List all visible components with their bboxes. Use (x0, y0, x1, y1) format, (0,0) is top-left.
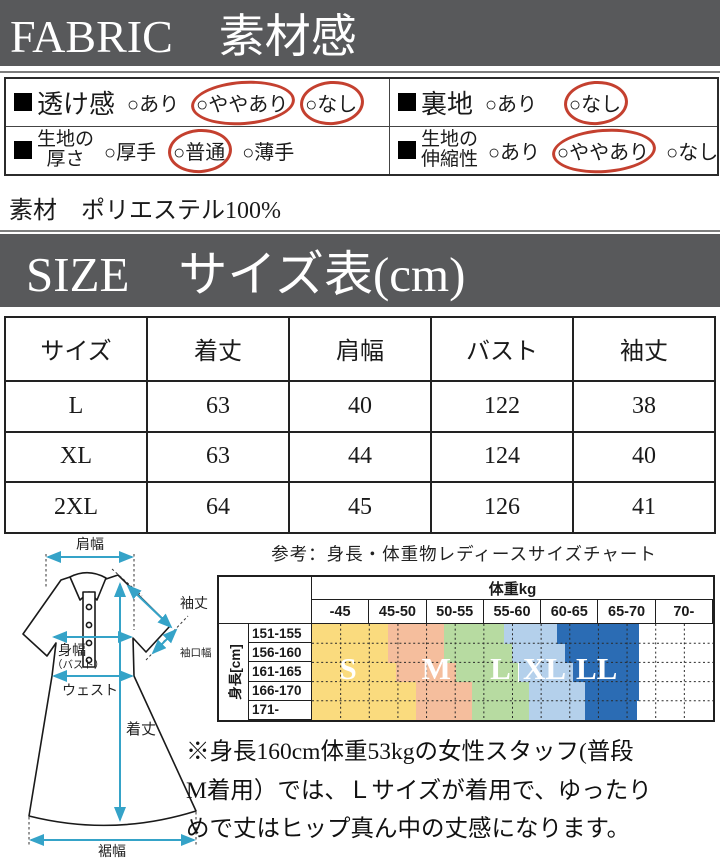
col-header: バスト (431, 317, 573, 381)
bottom-section: 肩幅 袖丈 袖口幅 身幅 （バスト） ウェスト 着丈 裾幅 参考：身長・体重物レ… (0, 534, 720, 859)
size-table: サイズ 着丈 肩幅 バスト 袖丈 L 63 40 122 38 XL 63 44… (4, 316, 716, 534)
weight-col-label: 50-55 (427, 600, 484, 624)
weight-axis-header: 体重kg (312, 577, 713, 600)
fabric-banner-title: FABRIC 素材感 (10, 0, 357, 66)
black-square-bullet-icon (14, 141, 32, 159)
bust-width-sublabel: （バスト） (52, 659, 105, 671)
cell-value: 41 (573, 482, 715, 533)
shoulder-width-label: 肩幅 (76, 536, 104, 552)
fabric-option-circled: ○ややあり (557, 136, 649, 165)
weight-col-label: 60-65 (541, 600, 598, 624)
size-name: L (5, 381, 147, 432)
size-letter: L (490, 651, 511, 687)
fabric-option-circled: ○普通 (173, 136, 225, 165)
height-row-label: 171- (249, 701, 312, 720)
fabric-option: ○薄手 (242, 136, 294, 165)
cell-value: 40 (289, 381, 431, 432)
fabric-option: ○あり (127, 88, 179, 117)
table-row: XL 63 44 124 40 (5, 432, 715, 483)
col-header: 袖丈 (573, 317, 715, 381)
height-row-label: 156-160 (249, 643, 312, 662)
size-banner-title: SIZE サイズ表(cm) (26, 235, 465, 306)
sleeve-length-label: 袖丈 (180, 595, 208, 611)
fabric-option-circled: ○なし (569, 88, 621, 117)
size-letter: S (339, 651, 356, 687)
cell-value: 38 (573, 381, 715, 432)
height-row-label: 166-170 (249, 682, 312, 701)
fabric-row-stretch: 生地の 伸縮性 ○あり ○ややあり ○なし (390, 127, 717, 175)
waist-label: ウェスト (62, 682, 118, 698)
fabric-row-thickness: 生地の 厚さ ○厚手 ○普通 ○薄手 (6, 127, 390, 175)
fabric-banner: FABRIC 素材感 (0, 0, 720, 66)
cell-value: 122 (431, 381, 573, 432)
size-letter: XL (523, 651, 566, 687)
dress-outline (23, 573, 196, 826)
cell-value: 64 (147, 482, 289, 533)
fabric-label: 透け感 (37, 84, 115, 121)
fabric-option-circled: ○ややあり (196, 88, 288, 117)
weight-col-label: 70- (656, 600, 713, 624)
weight-col-label: 55-60 (484, 600, 541, 624)
size-name: XL (5, 432, 147, 483)
fabric-option: ○あり (485, 88, 537, 117)
divider-line (0, 71, 720, 73)
height-row-label: 161-165 (249, 662, 312, 681)
col-header: サイズ (5, 317, 147, 381)
bust-width-label: 身幅 (58, 642, 86, 658)
size-table-header-row: サイズ 着丈 肩幅 バスト 袖丈 (5, 317, 715, 381)
weight-col-label: 45-50 (369, 600, 426, 624)
weight-col-label: -45 (312, 600, 369, 624)
material-text: 素材 ポリエステル100% (9, 190, 281, 225)
col-header: 着丈 (147, 317, 289, 381)
note-line: めで丈はヒップ真ん中の丈感になります。 (186, 810, 720, 849)
table-row: L 63 40 122 38 (5, 381, 715, 432)
black-square-bullet-icon (398, 141, 416, 159)
fabric-row-sheerness: 透け感 ○あり ○ややあり ○なし (6, 79, 390, 127)
fabric-label-twoline: 生地の 伸縮性 (421, 130, 478, 171)
size-letter: M (422, 651, 451, 687)
fabric-option: ○なし (666, 136, 717, 165)
size-letter: LL (576, 651, 617, 687)
size-banner: SIZE サイズ表(cm) (0, 234, 720, 307)
black-square-bullet-icon (14, 93, 32, 111)
black-square-bullet-icon (398, 93, 416, 111)
fabric-row-lining: 裏地 ○あり ○なし (390, 79, 717, 127)
fabric-label-twoline: 生地の 厚さ (37, 130, 94, 171)
note-line: M着用）では、Ｌサイズが着用で、ゆったり (186, 772, 720, 811)
fabric-label: 裏地 (421, 84, 473, 121)
divider-line (0, 230, 720, 232)
fabric-option: ○あり (488, 136, 540, 165)
cuff-width-label: 袖口幅 (180, 646, 212, 659)
reference-chart-caption: 参考：身長・体重物レディースサイズチャート (217, 541, 711, 566)
cell-value: 63 (147, 381, 289, 432)
height-axis-header: 身長[cm] (219, 624, 249, 720)
size-band-area: SMLXLLL (312, 624, 713, 720)
length-label: 着丈 (126, 721, 156, 738)
cell-value: 45 (289, 482, 431, 533)
table-row: 2XL 64 45 126 41 (5, 482, 715, 533)
fabric-table: 透け感 ○あり ○ややあり ○なし 裏地 ○あり ○なし 生地の 厚さ ○厚手 … (4, 77, 719, 176)
fabric-option: ○厚手 (104, 136, 156, 165)
height-weight-size-chart: 体重kg -45 45-50 50-55 55-60 60-65 65-70 7… (217, 575, 715, 722)
staff-fit-note: ※身長160cm体重53kgの女性スタッフ(普段 M着用）では、Ｌサイズが着用で… (186, 733, 720, 849)
chart-grid (312, 624, 713, 720)
product-spec-sheet: FABRIC 素材感 透け感 ○あり ○ややあり ○なし 裏地 ○あり ○なし … (0, 0, 720, 859)
hem-width-label: 裾幅 (98, 843, 126, 859)
cell-value: 126 (431, 482, 573, 533)
height-row-label: 151-155 (249, 624, 312, 643)
cell-value: 44 (289, 432, 431, 483)
size-name: 2XL (5, 482, 147, 533)
col-header: 肩幅 (289, 317, 431, 381)
weight-col-label: 65-70 (598, 600, 655, 624)
cell-value: 63 (147, 432, 289, 483)
cell-value: 40 (573, 432, 715, 483)
chart-corner-cell (219, 577, 312, 624)
fabric-option-circled: ○なし (305, 88, 357, 117)
note-line: ※身長160cm体重53kgの女性スタッフ(普段 (186, 733, 720, 772)
cell-value: 124 (431, 432, 573, 483)
